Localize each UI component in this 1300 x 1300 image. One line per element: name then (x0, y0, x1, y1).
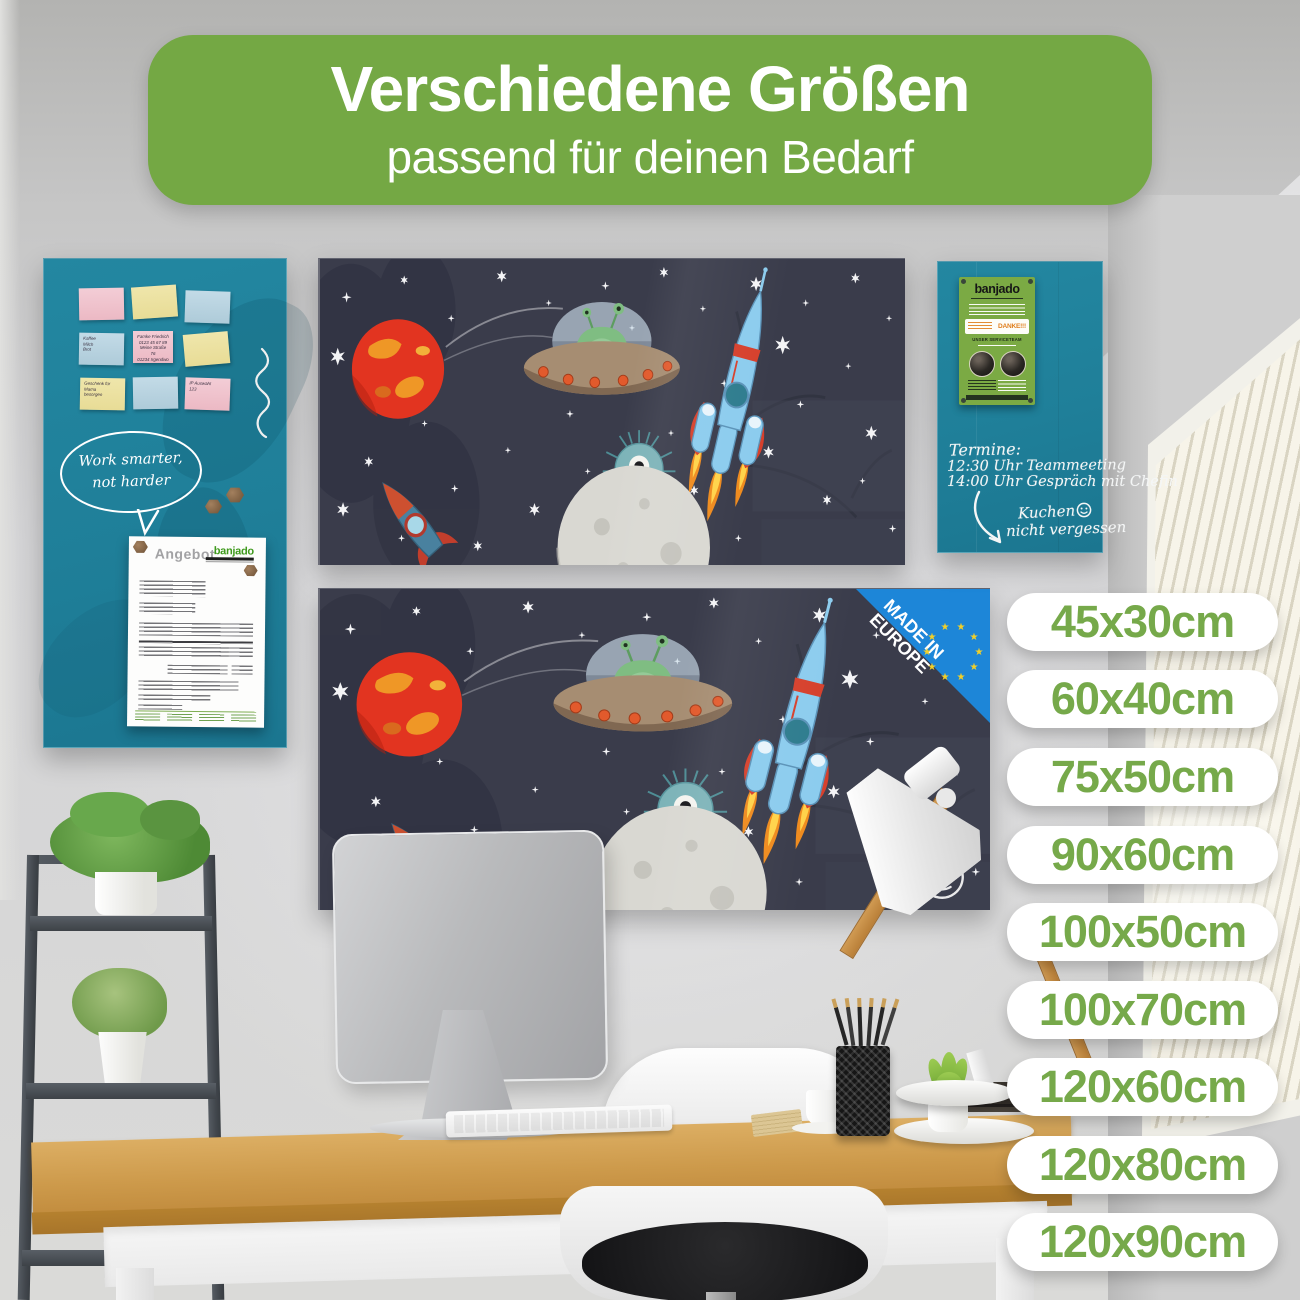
size-pill-90x60: 90x60cm (1007, 826, 1278, 884)
handwriting-termine: Termine: (949, 439, 1021, 459)
banner-subtitle: passend für deinen Bedarf (386, 130, 913, 184)
danke-box: DANKE!!! (965, 319, 1029, 334)
plant-pot (95, 1032, 150, 1084)
chair-pole (706, 1292, 736, 1300)
lamp-joint (936, 788, 956, 808)
size-pill-120x90: 120x90cm (1007, 1213, 1278, 1271)
service-text: UNSER SERVICETEAM (965, 337, 1029, 342)
size-pill-120x80: 120x80cm (1007, 1136, 1278, 1194)
pen-cup (836, 1046, 890, 1136)
chair-cushion (582, 1222, 868, 1300)
banjado-logo: banjado (214, 545, 254, 557)
svg-text:★: ★ (957, 622, 966, 633)
svg-text:★: ★ (923, 647, 932, 658)
memo-board-right: banjado DANKE!!! UNSER SERVICETEAM Termi… (937, 261, 1103, 553)
size-pill-120x60: 120x60cm (1007, 1058, 1278, 1116)
svg-text:★: ★ (941, 672, 950, 683)
headline-banner: Verschiedene Größen passend für deinen B… (148, 35, 1152, 205)
svg-text:★: ★ (970, 632, 979, 643)
sticky-note: IP Auswahl 123 (184, 377, 230, 411)
svg-text:★: ★ (928, 632, 937, 643)
plant-pot (95, 872, 157, 915)
plant (72, 968, 167, 1040)
handwriting-meeting: 12:30 Uhr Teammeeting (947, 457, 1126, 475)
smiley-icon (1076, 502, 1092, 518)
banjado-flyer: banjado DANKE!!! UNSER SERVICETEAM (959, 277, 1035, 405)
flyer-brand: banjado (965, 283, 1029, 296)
sticky-note (183, 331, 231, 367)
sticky-note (131, 284, 178, 319)
document-title: Angebot (155, 546, 215, 563)
size-pill-45x30: 45x30cm (1007, 593, 1278, 651)
sticky-note: Kaffee Milch Brot (79, 333, 125, 366)
desk-leg (116, 1268, 154, 1300)
size-pill-100x70: 100x70cm (1007, 981, 1278, 1039)
wall-corner-highlight (0, 0, 20, 900)
made-in-europe-badge: MADE IN EUROPE ★★★ ★★★ ★★★★ (850, 589, 990, 729)
dog-photos (965, 351, 1029, 377)
svg-text:★: ★ (957, 672, 966, 683)
banner-title: Verschiedene Größen (330, 56, 969, 123)
svg-text:★: ★ (941, 622, 950, 633)
product-photo: Kaffee Milch Brot Famke Friedrich 0123 4… (0, 0, 1300, 1300)
speech-bubble-line2: not harder (62, 470, 201, 497)
speech-bubble-tail (134, 509, 164, 539)
sticky-note (79, 288, 125, 321)
memo-board-left: Kaffee Milch Brot Famke Friedrich 0123 4… (43, 258, 287, 748)
svg-text:★: ★ (970, 662, 979, 673)
danke-text: DANKE!!! (998, 323, 1026, 330)
svg-text:★: ★ (928, 662, 937, 673)
squiggle-doodle (249, 347, 273, 439)
sticky-note (133, 377, 179, 410)
sticky-note (184, 290, 230, 324)
size-pill-100x50: 100x50cm (1007, 903, 1278, 961)
size-pill-75x50: 75x50cm (1007, 748, 1278, 806)
svg-text:★: ★ (975, 647, 984, 658)
magnet-icon (244, 564, 258, 576)
magnet-board-top (318, 258, 905, 565)
sticky-note: Geschenk für Mama besorgen (80, 378, 126, 411)
sticky-note: Famke Friedrich 0123 45 67 89 Meine Stra… (133, 331, 173, 363)
size-pill-60x40: 60x40cm (1007, 670, 1278, 728)
angebot-document: Angebot banjado (127, 536, 266, 727)
handwriting-gespraech: 14:00 Uhr Gespräch mit Chefin (947, 474, 1178, 490)
magnet-icon (133, 540, 148, 553)
lamp-base (896, 1080, 1014, 1106)
